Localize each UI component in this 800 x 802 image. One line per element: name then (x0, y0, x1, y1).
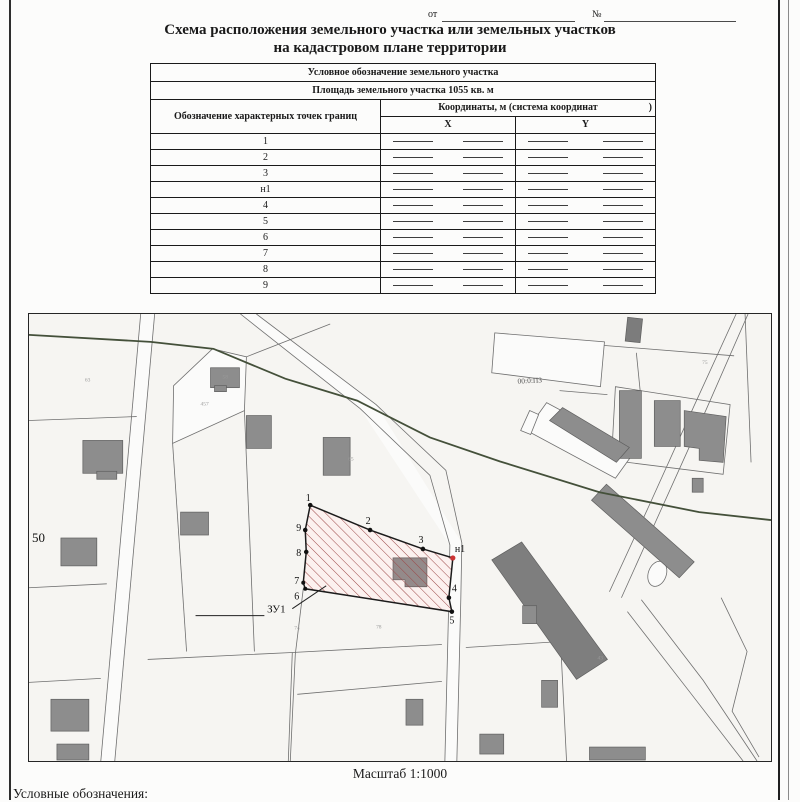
designation-header-cell: Условное обозначение земельного участка (151, 64, 656, 82)
y-value-cell (516, 150, 656, 166)
x-value-cell (381, 134, 516, 150)
point-2 (368, 528, 373, 533)
table-row: н1 (151, 182, 656, 198)
y-value-cell (516, 262, 656, 278)
point-label-cell: 5 (151, 214, 381, 230)
x-column-header: X (381, 117, 516, 134)
y-value-cell (516, 182, 656, 198)
tiny-label: 457 (201, 402, 209, 408)
y-value-cell (516, 134, 656, 150)
point-label-8: 8 (296, 548, 301, 559)
point-9 (303, 528, 308, 533)
point-7 (301, 581, 305, 585)
point-label-7: 7 (294, 576, 299, 587)
y-value-cell (516, 230, 656, 246)
table-row: 8 (151, 262, 656, 278)
table-row: 1 (151, 134, 656, 150)
coords-system-header: Координаты, м (система координат) (381, 100, 656, 117)
table-row: 6 (151, 230, 656, 246)
x-value-cell (381, 198, 516, 214)
tiny-label: 78 (376, 625, 382, 631)
x-value-cell (381, 214, 516, 230)
region-number-label: 50 (32, 530, 45, 545)
date-prefix-label: от (428, 9, 437, 20)
y-value-cell (516, 166, 656, 182)
point-label-3: 3 (418, 535, 423, 546)
y-value-cell (516, 278, 656, 294)
page-right-border (778, 0, 780, 800)
number-prefix-label: № (592, 9, 602, 20)
point-label-cell: 8 (151, 262, 381, 278)
x-value-cell (381, 278, 516, 294)
point-n1-new (450, 555, 455, 560)
point-label-6: 6 (294, 592, 299, 603)
table-row: 9 (151, 278, 656, 294)
point-label-4: 4 (452, 584, 457, 595)
page-title-line1: Схема расположения земельного участка ил… (30, 21, 750, 39)
page-title: Схема расположения земельного участка ил… (30, 21, 750, 57)
x-value-cell (381, 246, 516, 262)
point-label-cell: 4 (151, 198, 381, 214)
page-title-line2: на кадастровом плане территории (30, 39, 750, 57)
x-value-cell (381, 182, 516, 198)
point-4 (447, 595, 452, 600)
tiny-label: 43 (597, 655, 603, 661)
parcel-zu1-label: ЗУ1 (267, 604, 285, 616)
y-value-cell (516, 214, 656, 230)
point-label-cell: н1 (151, 182, 381, 198)
coords-header-text: Координаты, м (система координат (438, 102, 597, 113)
table-row: 5 (151, 214, 656, 230)
document-number-line: от № (0, 8, 800, 22)
map-scale-label: Масштаб 1:1000 (0, 766, 800, 782)
tiny-label: 74 (294, 626, 300, 632)
point-label-cell: 1 (151, 134, 381, 150)
point-label-1: 1 (306, 493, 311, 504)
point-label-n1: н1 (455, 544, 465, 555)
point-3 (421, 547, 426, 552)
point-label-cell: 9 (151, 278, 381, 294)
tiny-label: 63 (85, 378, 91, 384)
tiny-label: 75 (702, 360, 708, 366)
tiny-label: 58 (222, 375, 228, 381)
point-label-5: 5 (449, 616, 454, 627)
table-row: 7 (151, 246, 656, 262)
point-label-cell: 3 (151, 166, 381, 182)
point-label-9: 9 (296, 523, 301, 534)
x-value-cell (381, 166, 516, 182)
area-header-cell: Площадь земельного участка 1055 кв. м (151, 82, 656, 100)
coords-header-close-paren: ) (649, 101, 652, 115)
coordinates-table: Условное обозначение земельного участка … (150, 63, 656, 294)
page-right-border-thin (788, 0, 789, 800)
y-column-header: Y (516, 117, 656, 134)
x-value-cell (381, 262, 516, 278)
cadastral-quarter-label: 00:0:ПЗ (517, 375, 542, 385)
tiny-label: 65 (348, 456, 354, 462)
point-label-2: 2 (366, 516, 371, 527)
point-label-cell: 7 (151, 246, 381, 262)
x-value-cell (381, 230, 516, 246)
point-label-cell: 6 (151, 230, 381, 246)
table-row: 4 (151, 198, 656, 214)
cadastral-map: 1 2 3 н1 4 5 6 7 8 9 ЗУ1 50 00:0:ПЗ 63 4… (28, 313, 772, 762)
point-8 (304, 550, 309, 555)
page-left-border (9, 0, 11, 800)
table-row: 3 (151, 166, 656, 182)
cadastral-map-svg: 1 2 3 н1 4 5 6 7 8 9 ЗУ1 50 00:0:ПЗ 63 4… (29, 314, 771, 761)
y-value-cell (516, 198, 656, 214)
y-value-cell (516, 246, 656, 262)
table-row: 2 (151, 150, 656, 166)
point-6 (303, 587, 307, 591)
point-label-cell: 2 (151, 150, 381, 166)
point-5 (450, 609, 455, 614)
x-value-cell (381, 150, 516, 166)
points-column-header: Обозначение характерных точек границ (151, 100, 381, 134)
